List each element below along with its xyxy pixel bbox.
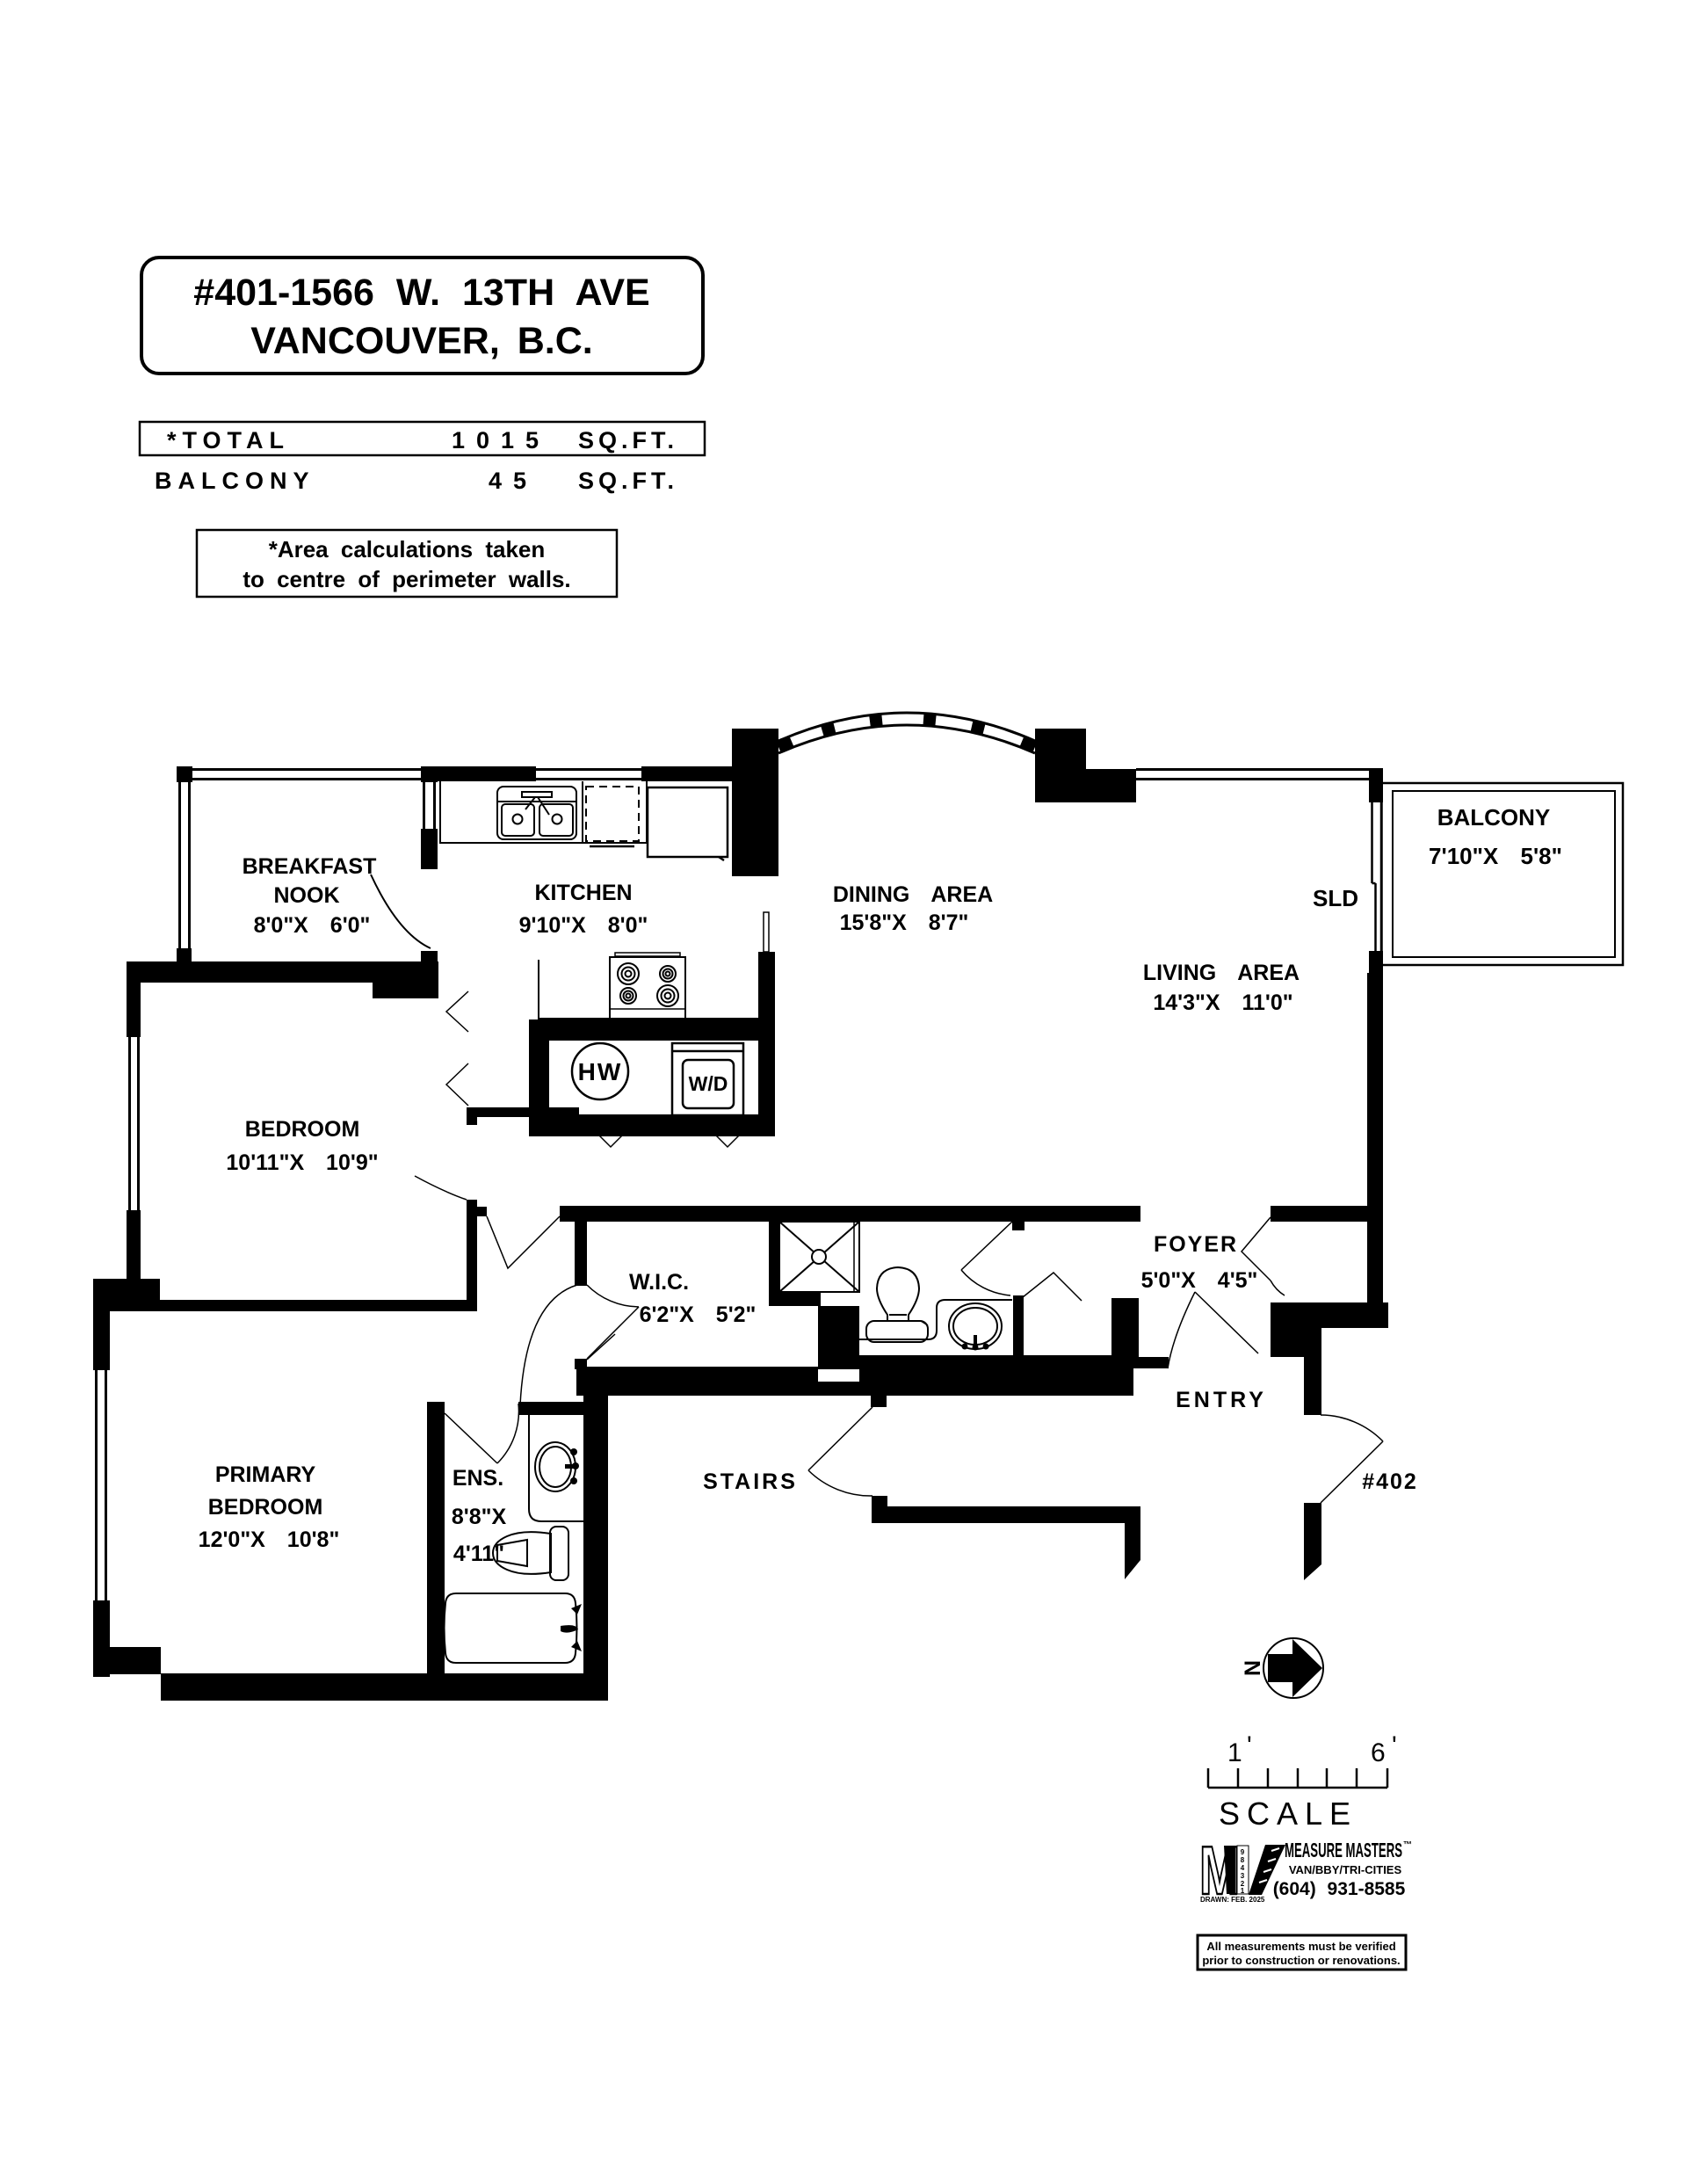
svg-text:All measurements must be verif: All measurements must be verified xyxy=(1206,1940,1395,1953)
svg-text:#401-1566 W. 13TH AVE: #401-1566 W. 13TH AVE xyxy=(193,272,649,314)
svg-text:NOOK: NOOK xyxy=(274,883,340,908)
svg-text:5'0"X 4'5": 5'0"X 4'5" xyxy=(1141,1268,1258,1293)
svg-text:BALCONY: BALCONY xyxy=(1437,804,1551,831)
svg-text:BEDROOM: BEDROOM xyxy=(245,1117,360,1142)
svg-text:': ' xyxy=(1247,1731,1252,1760)
svg-text:SCALE: SCALE xyxy=(1219,1796,1358,1832)
svg-text:12'0"X 10'8": 12'0"X 10'8" xyxy=(199,1527,340,1552)
svg-text:BALCONY: BALCONY xyxy=(155,468,315,494)
svg-text:STAIRS: STAIRS xyxy=(703,1469,798,1494)
svg-text:HW: HW xyxy=(578,1058,623,1085)
svg-text:BREAKFAST: BREAKFAST xyxy=(243,854,377,879)
svg-text:W.I.C.: W.I.C. xyxy=(629,1270,689,1295)
svg-text:DRAWN: FEB. 2025: DRAWN: FEB. 2025 xyxy=(1200,1896,1265,1904)
svg-text:6: 6 xyxy=(1371,1738,1386,1767)
svg-text:(604) 931-8585: (604) 931-8585 xyxy=(1273,1879,1406,1899)
svg-text:*Area calculations taken: *Area calculations taken xyxy=(269,536,546,562)
svg-text:': ' xyxy=(1392,1731,1397,1760)
svg-text:™: ™ xyxy=(1403,1840,1412,1850)
svg-text:SLD: SLD xyxy=(1313,885,1358,911)
svg-text:*TOTAL: *TOTAL xyxy=(167,427,290,453)
svg-text:1015: 1015 xyxy=(452,427,550,453)
svg-text:15'8"X 8'7": 15'8"X 8'7" xyxy=(840,911,969,935)
svg-text:PRIMARY: PRIMARY xyxy=(215,1462,316,1487)
svg-text:SQ.FT.: SQ.FT. xyxy=(578,427,678,453)
svg-text:4: 4 xyxy=(1241,1864,1245,1872)
svg-text:W/D: W/D xyxy=(689,1072,728,1095)
svg-text:LIVING AREA: LIVING AREA xyxy=(1143,961,1300,985)
svg-text:KITCHEN: KITCHEN xyxy=(534,881,632,905)
svg-text:N: N xyxy=(1241,1660,1265,1676)
svg-text:MEASURE MASTERS: MEASURE MASTERS xyxy=(1285,1839,1402,1861)
svg-text:7'10"X 5'8": 7'10"X 5'8" xyxy=(1429,843,1562,869)
svg-text:8: 8 xyxy=(1241,1856,1245,1864)
svg-text:BEDROOM: BEDROOM xyxy=(208,1495,323,1520)
svg-text:VAN/BBY/TRI-CITIES: VAN/BBY/TRI-CITIES xyxy=(1289,1863,1402,1876)
svg-text:VANCOUVER, B.C.: VANCOUVER, B.C. xyxy=(250,320,592,362)
svg-text:14'3"X 11'0": 14'3"X 11'0" xyxy=(1153,990,1292,1015)
svg-text:9'10"X 8'0": 9'10"X 8'0" xyxy=(519,913,648,938)
svg-text:FOYER: FOYER xyxy=(1154,1232,1238,1257)
svg-text:45: 45 xyxy=(489,468,538,494)
svg-text:4'11": 4'11" xyxy=(453,1542,504,1566)
svg-text:8'8"X: 8'8"X xyxy=(452,1505,507,1529)
svg-text:prior to construction or renov: prior to construction or renovations. xyxy=(1202,1954,1400,1967)
svg-text:8'0"X 6'0": 8'0"X 6'0" xyxy=(254,913,371,938)
svg-text:3: 3 xyxy=(1241,1872,1245,1880)
svg-text:SQ.FT.: SQ.FT. xyxy=(578,468,678,494)
svg-text:10'11"X 10'9": 10'11"X 10'9" xyxy=(226,1150,378,1175)
svg-text:#402: #402 xyxy=(1362,1469,1418,1494)
svg-text:1: 1 xyxy=(1241,1887,1245,1895)
svg-text:1: 1 xyxy=(1227,1738,1242,1767)
svg-text:9: 9 xyxy=(1241,1848,1245,1856)
svg-text:ENS.: ENS. xyxy=(453,1466,503,1491)
svg-text:to centre of perimeter walls.: to centre of perimeter walls. xyxy=(243,566,570,592)
svg-text:ENTRY: ENTRY xyxy=(1176,1388,1267,1412)
svg-text:DINING AREA: DINING AREA xyxy=(833,882,993,907)
svg-text:6'2"X 5'2": 6'2"X 5'2" xyxy=(640,1302,757,1327)
